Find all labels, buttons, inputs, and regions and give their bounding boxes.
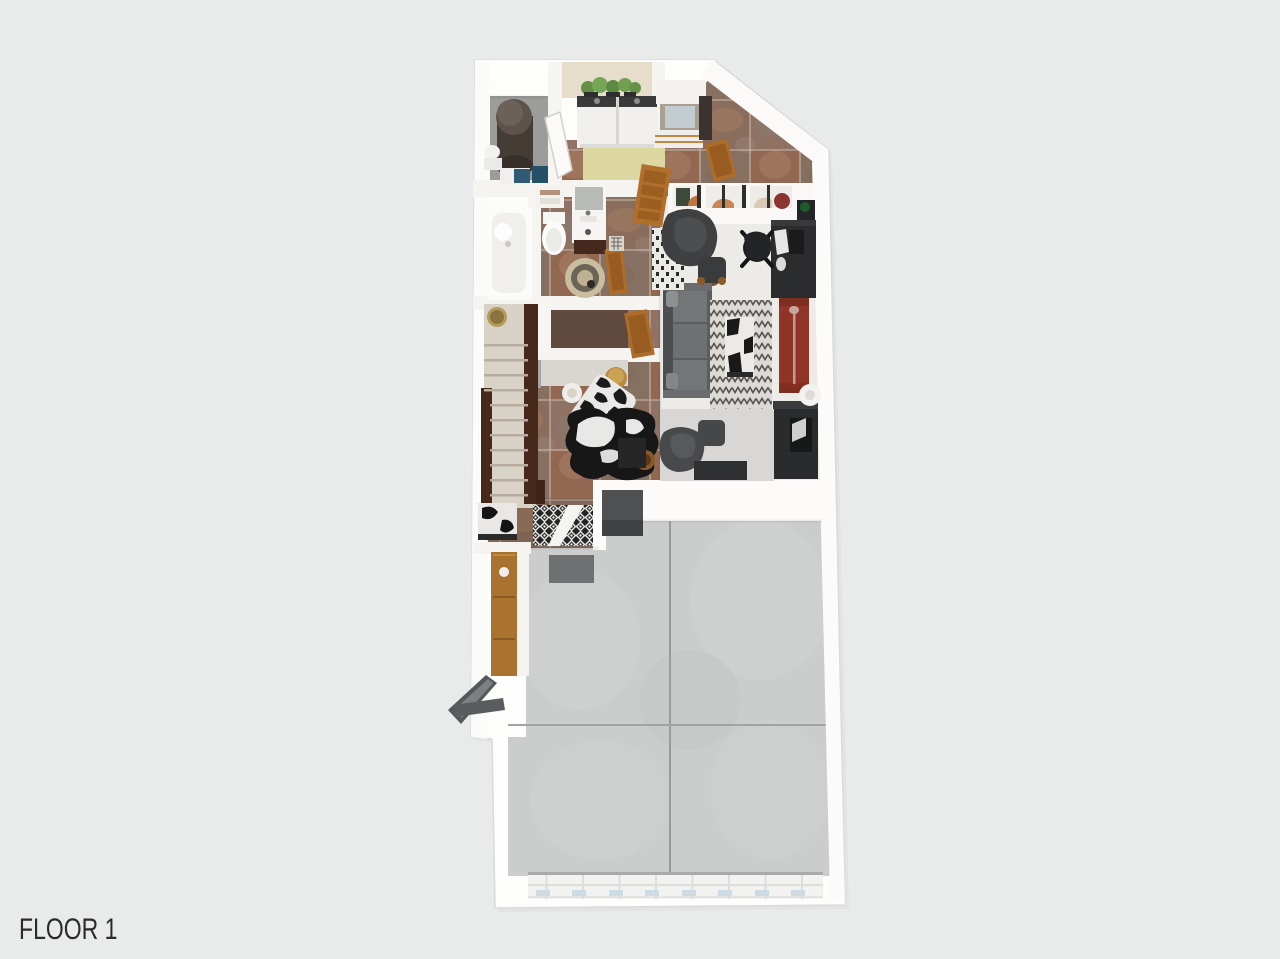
svg-text:FLOOR 1: FLOOR 1: [19, 912, 117, 945]
